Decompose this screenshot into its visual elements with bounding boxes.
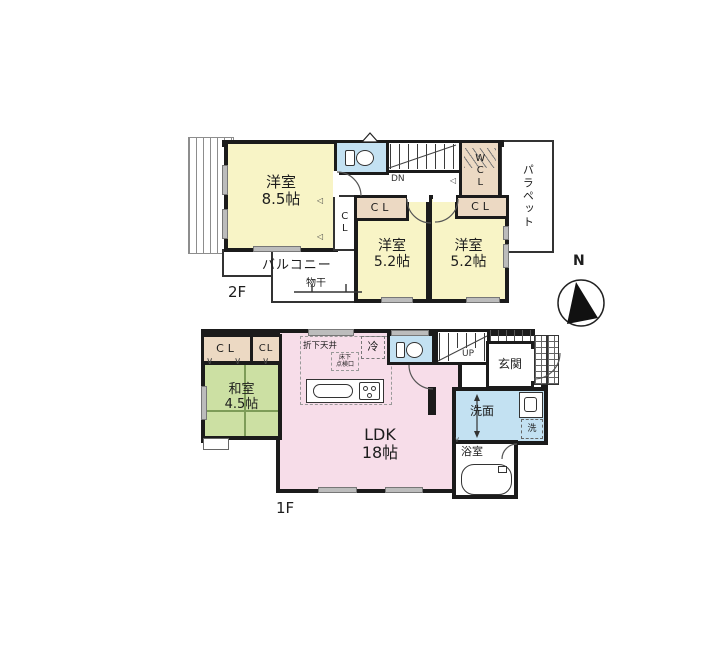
washer-space: 洗 <box>521 419 543 439</box>
stairs-down-label: DN <box>391 174 405 184</box>
bathroom-label: 浴室 <box>461 443 483 459</box>
toilet-bowl-icon <box>406 342 423 358</box>
room-label-western-5-2-right: 洋室 5.2帖 <box>428 231 509 277</box>
lowered-ceiling-label: 折下天井 <box>303 339 337 351</box>
closet-2f-right: CL <box>455 195 509 219</box>
cl-b-label: CL <box>259 343 274 355</box>
door-opening <box>407 195 429 202</box>
stairs-2f <box>386 140 463 173</box>
sliding-door-icon: ∨ <box>262 356 269 367</box>
wall <box>428 387 436 415</box>
porch-step <box>534 335 547 385</box>
cl-side-label: CL <box>339 211 351 235</box>
room-label-japanese: 和室 4.5帖 <box>201 378 282 418</box>
kitchen-counter <box>306 379 384 403</box>
walk-in-closet-2f: WCL <box>459 140 501 199</box>
door-opening <box>433 195 456 202</box>
toilet-1f <box>387 333 435 365</box>
floor1-label: 1F <box>276 499 294 517</box>
closet-2f-center: CL <box>354 195 409 221</box>
floorplan-canvas: パラペット WCL CL CL CL 洋室 8.5帖 洋 <box>0 0 723 666</box>
porch-step <box>547 335 559 385</box>
toilet-tank-icon <box>345 150 355 166</box>
sliding-door-icon: ∨ <box>234 356 241 367</box>
cl-center-label: CL <box>371 202 393 215</box>
stove-icon <box>359 382 380 400</box>
floor2-label: 2F <box>228 283 246 301</box>
washing-machine-icon <box>519 392 543 418</box>
laundry-pole-label: 物干 <box>306 274 326 289</box>
toilet-bowl-icon <box>356 150 374 166</box>
sliding-door-icon: ∨ <box>206 356 213 367</box>
door-fold-icon: ◁ <box>317 232 323 241</box>
room-label-western-5-2-center: 洋室 5.2帖 <box>354 231 430 277</box>
window <box>391 330 429 336</box>
door-fold-icon: ◁ <box>450 176 456 185</box>
washer-label: 洗 <box>527 424 536 434</box>
compass-circle <box>558 280 604 326</box>
window <box>318 487 357 493</box>
toilet-tank-icon <box>396 342 405 358</box>
parapet-label: パラペット <box>521 164 534 229</box>
window <box>381 297 413 303</box>
underfloor-hatch-label: 床下 点検口 <box>331 352 359 371</box>
sliding-door-icon: ∨ <box>454 435 460 444</box>
window <box>466 297 500 303</box>
fridge-space: 冷 <box>361 336 385 359</box>
room-label-ldk: LDK 18帖 <box>330 420 430 468</box>
window <box>308 329 354 336</box>
bay-window <box>203 438 229 450</box>
door-fold-icon: ◁ <box>317 196 323 205</box>
compass-north-label: N <box>573 253 585 269</box>
balcony-label: バルコニー <box>262 254 332 273</box>
toilet-2f <box>334 140 389 175</box>
stair-treads <box>390 144 459 169</box>
washroom-label: 洗面 <box>470 402 494 419</box>
room-label-western-8-5: 洋室 8.5帖 <box>224 168 338 214</box>
fridge-label: 冷 <box>368 341 379 354</box>
door-arc <box>337 172 361 196</box>
window <box>385 487 423 493</box>
entrance-room: 玄関 <box>486 341 534 389</box>
wcl-label: WCL <box>474 153 486 189</box>
faucet-icon <box>498 466 507 473</box>
stairs-up-label-box: UP <box>455 348 481 361</box>
cl-right-label: CL <box>471 201 493 214</box>
entrance-label: 玄関 <box>498 358 522 372</box>
stairs-up-label: UP <box>462 349 474 359</box>
kitchen-sink-icon <box>313 384 353 398</box>
window <box>253 246 301 252</box>
compass-north-arrow <box>567 282 598 324</box>
cl-a-label: CL <box>216 343 238 356</box>
